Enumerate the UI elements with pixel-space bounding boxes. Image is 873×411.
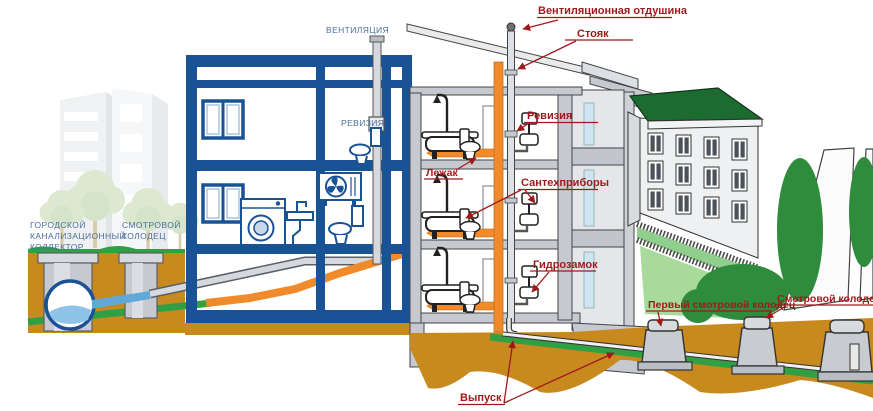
city-collector-well — [38, 253, 98, 331]
water-trap-label: Гидрозамок — [533, 259, 598, 271]
revision-label: РЕВИЗИЯ — [341, 118, 384, 128]
bathroom-floor — [422, 95, 538, 159]
lying-pipe-label: Лежак — [426, 167, 458, 179]
window-icon — [203, 185, 243, 222]
right-underground-section — [410, 317, 873, 398]
riser-pipe — [505, 23, 517, 323]
fan-unit-icon — [319, 173, 361, 206]
bathroom-floor — [422, 248, 538, 312]
right-wall — [558, 95, 572, 320]
soil-right — [410, 318, 873, 398]
window-icon — [203, 101, 243, 138]
left-wall — [410, 93, 421, 323]
city-collector-label-1: ГОРОДСКОЙ — [30, 219, 86, 230]
outlet-label: Выпуск — [460, 392, 502, 404]
city-collector-label-2: КАНАЛИЗАЦИОННЫЙ — [30, 230, 126, 241]
first-inspection-well-label: Первый смотровой колодец — [648, 299, 796, 311]
vent-outlet-label: Вентиляционная отдушина — [538, 5, 688, 17]
inspection-well-left — [119, 253, 163, 318]
revision-fitting — [505, 131, 517, 137]
cutaway-building — [407, 23, 661, 374]
sink-icon — [287, 202, 313, 244]
tree-row — [777, 158, 823, 302]
inspection-well-label-1: СМОТРОВОЙ — [122, 219, 181, 230]
revision-callout-label: Ревизия — [527, 110, 572, 122]
washing-machine-icon — [241, 199, 285, 245]
facade-side — [572, 90, 624, 330]
toilet-icon — [329, 206, 363, 244]
ventilation-label: ВЕНТИЛЯЦИЯ — [326, 25, 389, 35]
inspection-well-label-2: КОЛОДЕЦ — [122, 231, 166, 241]
vent-stack-pipe — [369, 36, 384, 264]
vent-outlet-cap — [507, 23, 515, 31]
sewer-riser-orange — [494, 62, 503, 332]
glass-strip — [584, 103, 594, 145]
soil-under-building — [185, 323, 412, 335]
left-wall — [186, 55, 197, 323]
fixtures-label: Сантехприборы — [521, 177, 609, 189]
inspection-well-callout-label: Смотровой колодец — [777, 293, 873, 305]
city-collector-label-3: КОЛЛЕКТОР — [30, 242, 84, 252]
riser-label: Стояк — [577, 28, 609, 40]
sewerage-diagram: ВЕНТИЛЯЦИЯ РЕВИЗИЯ ГОРОДСКОЙ КАНАЛИЗАЦИО… — [0, 0, 873, 411]
